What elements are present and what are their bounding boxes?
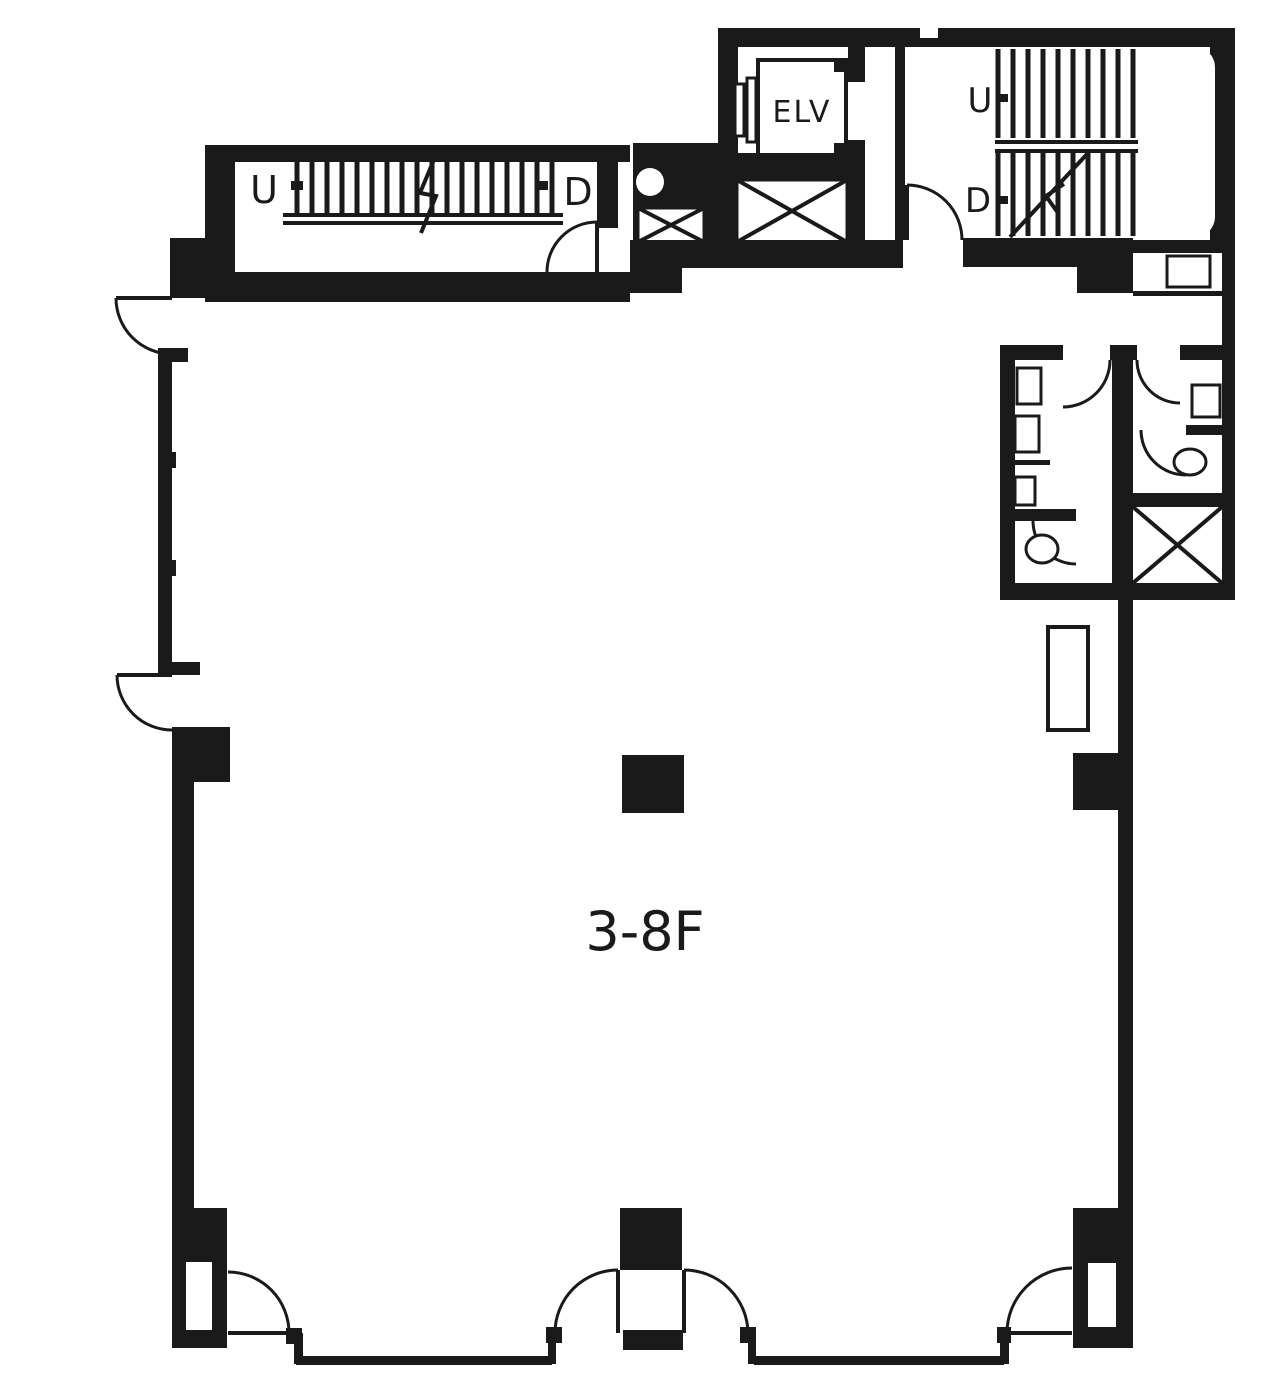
door-arc [555,1270,618,1333]
wall [1000,1333,1009,1364]
wall [718,28,738,268]
wall-fixture [1048,627,1088,730]
door-arc [1007,1268,1072,1333]
right-wall [1048,600,1133,1348]
wall [1133,240,1222,253]
wall [1180,345,1235,360]
floor-plan-page: U D ELV [0,0,1280,1391]
stair-up-label: U [968,81,993,121]
toilet-block [1000,345,1235,600]
stair-tick [536,181,548,190]
column [620,1208,682,1270]
elevator-door-bar [735,84,744,136]
column-inset [1088,1263,1116,1327]
wall [1133,493,1222,507]
stair-tick [996,94,1008,102]
stair-up-label: U [250,168,278,212]
door-leaf [905,185,909,240]
open-floor: 3-8F [585,755,704,963]
wall [1000,583,1235,600]
wall [548,1333,556,1364]
floor-plan: U D ELV [0,0,1280,1391]
door-arc [684,1270,748,1333]
wall [205,272,630,302]
stair-tick [996,196,1008,204]
wall [158,355,172,675]
wall [737,153,848,180]
door-leaf [616,1270,620,1333]
floor-label: 3-8F [585,900,704,963]
wall [895,28,1235,47]
stair-landing-line [995,140,1138,144]
wall [1000,345,1015,600]
stair-landing-line [283,213,563,217]
door-arc [1063,360,1110,407]
door-leaf [682,1270,686,1333]
door-arc [117,675,172,730]
service-slab [633,143,723,250]
column [622,755,684,813]
utility-fixture [1167,256,1210,287]
elevator-label: ELV [773,95,832,130]
wall [630,268,682,293]
stair-tick [291,181,303,190]
niche-edge [1133,291,1222,296]
column [170,238,230,298]
stair-down-label: D [563,170,592,214]
wall-notch [920,28,938,38]
wall [630,240,903,268]
elevator-door-bar [747,78,756,142]
sink-icon [636,168,664,196]
wall [895,47,905,240]
wall [1077,238,1133,293]
stall-wall [1008,509,1076,521]
toilet-icon [1026,535,1058,563]
sink-icon [1192,385,1220,417]
stair-landing-line [995,149,1138,153]
wall-nub [158,560,176,576]
door-leaf [228,1331,290,1335]
shelf [1012,460,1050,465]
wall [1222,28,1235,600]
door-arc [1137,360,1180,403]
door-leaf [117,673,172,677]
door-arc [116,298,172,354]
door-leaf [595,222,599,274]
column [1073,753,1118,810]
threshold [623,1330,683,1350]
wall [963,238,1077,267]
stair-break-symbol [420,150,438,233]
wall [1000,345,1063,360]
wall [172,782,194,1210]
door-leaf [1007,1331,1072,1335]
stairwell-left: U D [205,145,630,302]
sink-icon [1015,477,1035,505]
stair-down-label: D [965,181,991,221]
wall [296,1356,552,1365]
column-inset [186,1262,212,1330]
left-wall [116,238,230,1348]
door-leaf [116,296,172,300]
wall-nub [158,452,176,468]
door-arc [228,1272,289,1333]
wall [1112,345,1133,600]
cab-corner-notch [834,143,846,155]
elevator-block: ELV [718,28,920,268]
cab-corner-notch [834,60,846,72]
stall-wall [1186,425,1222,435]
column [172,727,230,782]
shaft-x-icon [1133,507,1222,583]
urinal-icon [1017,368,1041,404]
wall [597,145,618,228]
bottom-wall [228,1208,1072,1365]
urinal-icon [1015,416,1039,452]
wall [718,28,920,47]
wall [848,45,865,82]
toilet-icon [1174,449,1206,475]
wall [754,1356,1004,1365]
door-arc [547,222,597,272]
